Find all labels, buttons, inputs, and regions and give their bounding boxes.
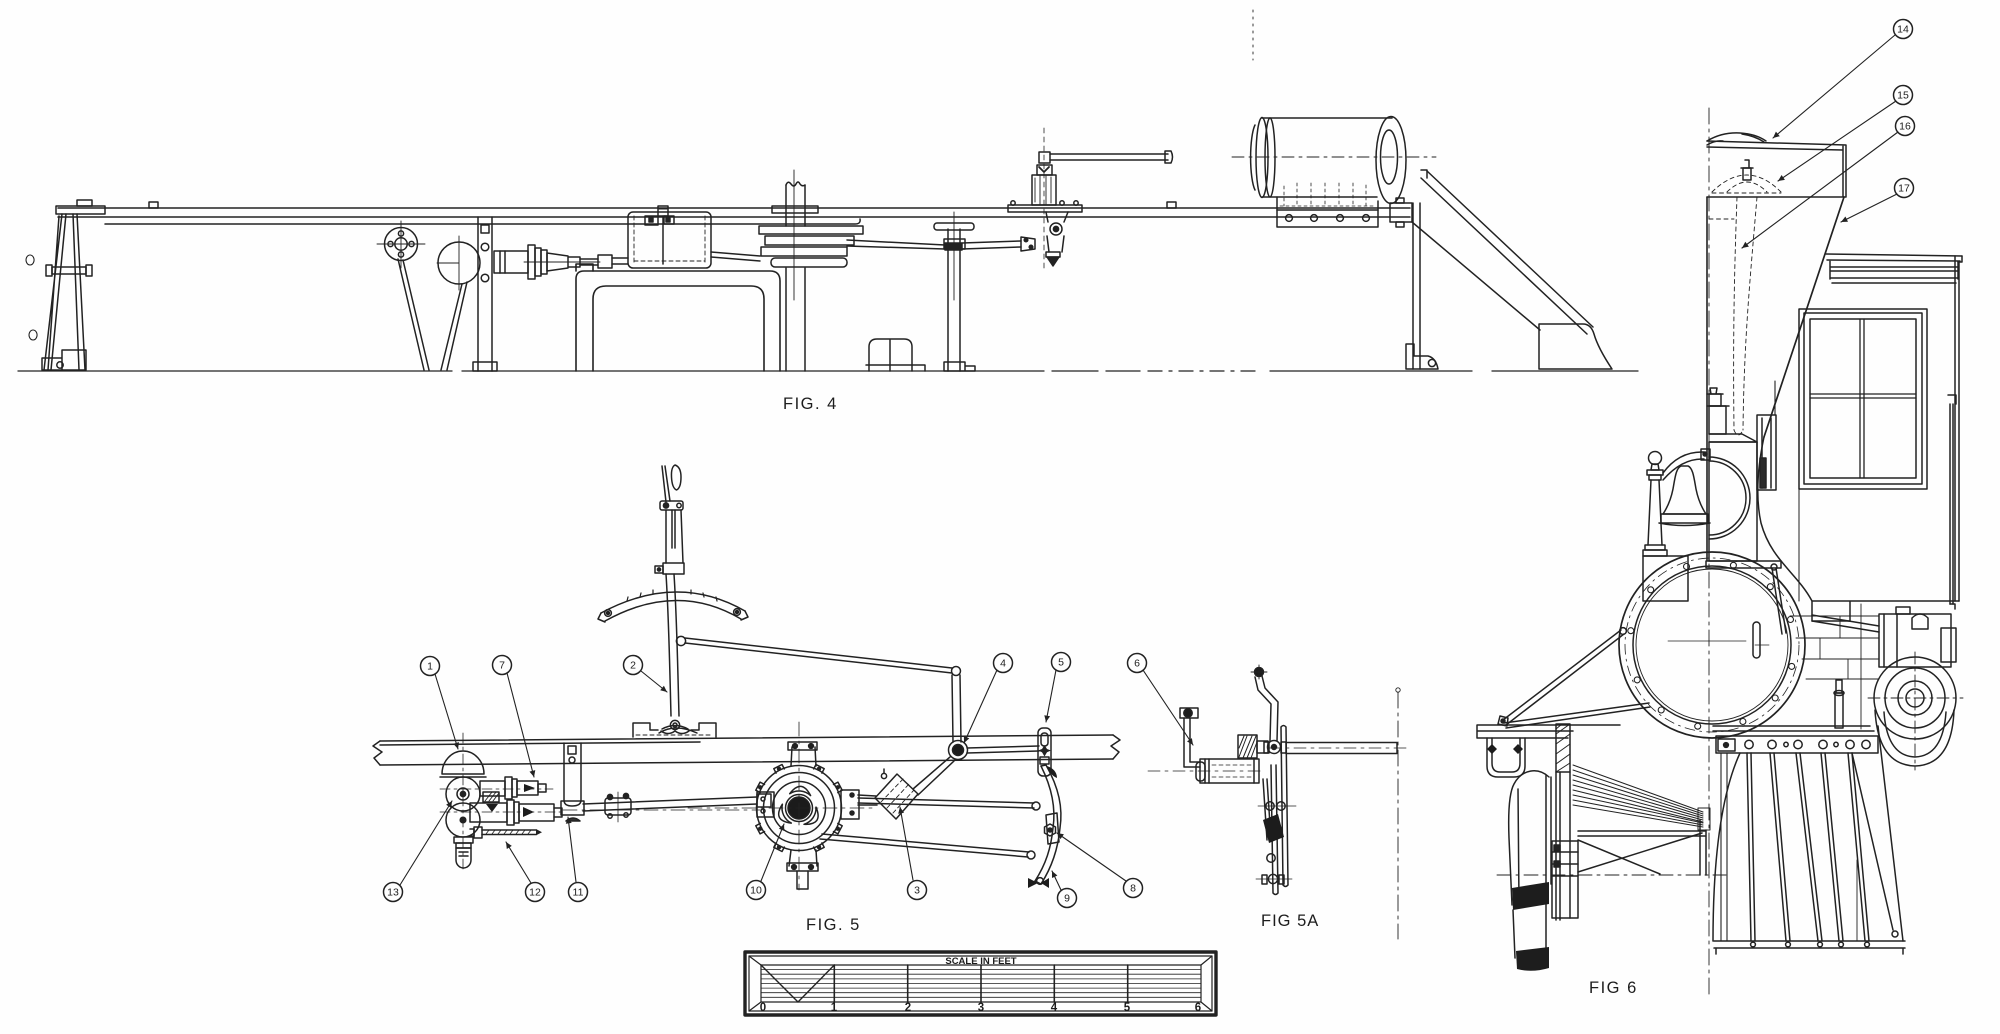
svg-text:4: 4 xyxy=(1051,1002,1058,1014)
svg-text:5: 5 xyxy=(1124,1002,1131,1014)
svg-text:5: 5 xyxy=(1058,657,1064,669)
svg-text:16: 16 xyxy=(1899,121,1911,133)
svg-text:6: 6 xyxy=(1134,658,1140,670)
svg-text:2: 2 xyxy=(905,1002,911,1014)
svg-text:2: 2 xyxy=(630,660,636,672)
svg-text:6: 6 xyxy=(1195,1002,1201,1014)
svg-text:FIG. 5: FIG. 5 xyxy=(806,916,861,934)
svg-text:3: 3 xyxy=(978,1002,984,1014)
svg-text:FIG. 4: FIG. 4 xyxy=(783,395,838,413)
svg-text:12: 12 xyxy=(529,887,541,899)
svg-text:9: 9 xyxy=(1064,893,1070,905)
svg-text:FIG 5A: FIG 5A xyxy=(1261,912,1319,930)
svg-text:17: 17 xyxy=(1898,183,1910,195)
svg-text:10: 10 xyxy=(750,885,762,897)
svg-text:8: 8 xyxy=(1130,883,1136,895)
svg-text:7: 7 xyxy=(499,660,505,672)
svg-text:11: 11 xyxy=(573,887,584,899)
svg-text:3: 3 xyxy=(914,885,920,897)
svg-text:0: 0 xyxy=(760,1002,766,1014)
svg-text:14: 14 xyxy=(1897,24,1909,36)
svg-text:13: 13 xyxy=(387,887,399,899)
svg-text:4: 4 xyxy=(1000,658,1006,670)
svg-text:FIG 6: FIG 6 xyxy=(1589,979,1638,997)
svg-text:1: 1 xyxy=(831,1002,838,1014)
svg-text:1: 1 xyxy=(427,661,433,673)
svg-text:15: 15 xyxy=(1897,90,1909,102)
